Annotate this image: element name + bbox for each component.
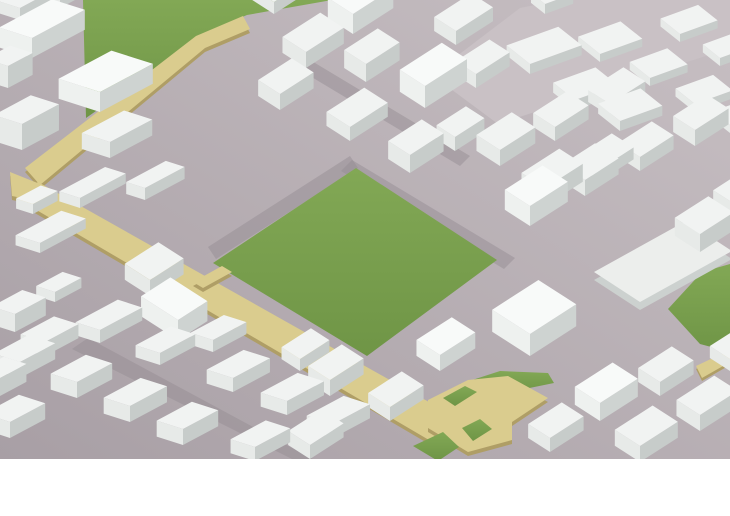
city-model-viewport — [0, 0, 730, 516]
bottom-crop-band — [0, 459, 730, 516]
city-render — [0, 0, 730, 516]
